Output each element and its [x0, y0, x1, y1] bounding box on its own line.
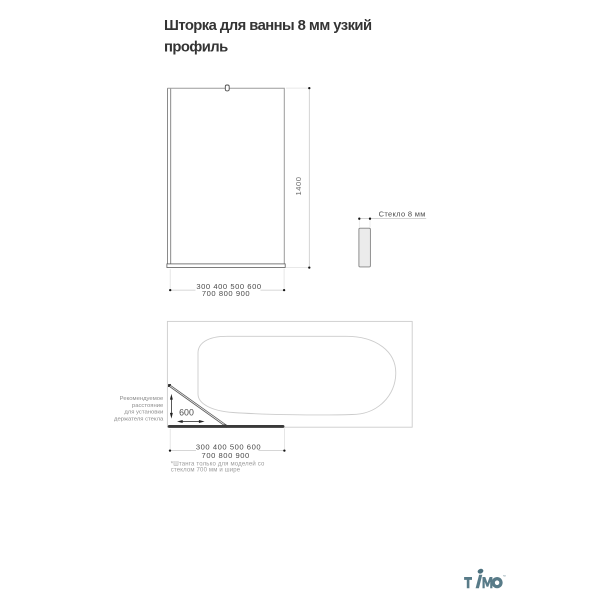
svg-text:™: ™ [503, 574, 506, 578]
svg-text:700 800 900: 700 800 900 [202, 289, 250, 298]
svg-text:Шторка для ванны 8 мм узкий: Шторка для ванны 8 мм узкий [164, 18, 372, 34]
svg-text:профиль: профиль [164, 39, 228, 55]
svg-text:300 400 500 600: 300 400 500 600 [196, 442, 261, 451]
svg-text:Рекомендуемое: Рекомендуемое [120, 396, 164, 402]
svg-text:600: 600 [179, 408, 194, 418]
svg-text:1400: 1400 [294, 176, 303, 195]
svg-text:расстояние: расстояние [132, 403, 164, 409]
svg-text:стеклом 700 мм и шире: стеклом 700 мм и шире [171, 468, 241, 474]
svg-text:для установки: для установки [124, 410, 163, 416]
svg-text:Стекло 8 мм: Стекло 8 мм [379, 209, 426, 218]
svg-text:*Штанга только для моделей со: *Штанга только для моделей со [171, 461, 265, 468]
svg-text:держателя стекла: держателя стекла [114, 417, 164, 423]
svg-text:700 800 900: 700 800 900 [202, 451, 250, 460]
